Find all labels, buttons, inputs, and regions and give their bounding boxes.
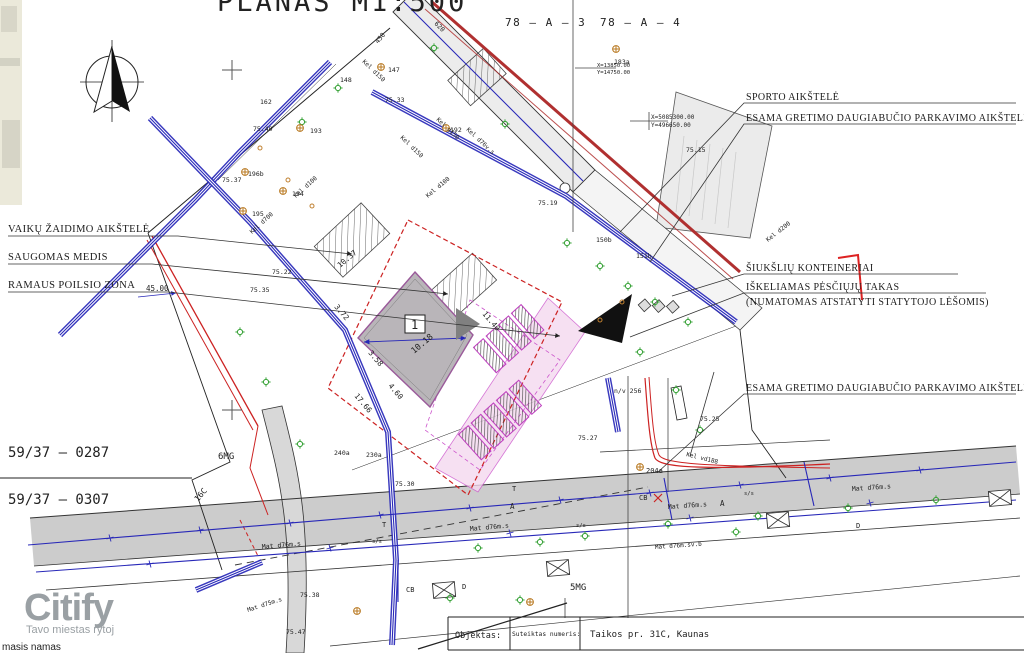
callout-pedestrian-path-note: (NUMATOMAS ATSTATYTI STATYTOJO LĖŠOMIS) xyxy=(746,296,989,308)
node-label: 192 xyxy=(450,126,462,134)
titleblock-address: Taikos pr. 31C, Kaunas xyxy=(590,630,709,640)
coord-cross1-y: Y=14750.00 xyxy=(597,70,630,76)
pipe-label: Kel d150 xyxy=(361,58,387,83)
elev: 75.30 xyxy=(395,480,415,488)
node-label: 162 xyxy=(260,98,272,106)
node-label: n/v 256 xyxy=(614,387,641,395)
elev: 75.25 xyxy=(700,415,720,423)
callout-existing-parking-2: ESAMA GRETIMO DAUGIABUČIO PARKAVIMO AIKŠ… xyxy=(746,382,1024,394)
node-label: 204a xyxy=(646,467,663,475)
node-label: 150b xyxy=(596,236,612,244)
callout-pedestrian-path: IŠKELIAMAS PĖSČIŲJŲ TAKAS xyxy=(746,281,899,293)
site-plan-page: 1 xyxy=(0,0,1024,653)
pipe-label: Mat d76m.sv.b xyxy=(655,541,703,551)
dim-4-60: 4.60 xyxy=(386,382,405,402)
title-block: Objektas: Suteiktas numeris: Taikos pr. … xyxy=(418,603,1024,650)
citify-logo-tagline: Tavo miestas rytoj xyxy=(26,624,114,636)
node-label: 195 xyxy=(252,210,264,218)
elev: 75.38 xyxy=(300,591,320,599)
callout-waste-containers: ŠIUKŠLIŲ KONTEINERIAI xyxy=(746,262,874,274)
dim-45-00: 45.00 xyxy=(146,284,169,293)
elev: 75.22 xyxy=(272,268,292,276)
node-label: 450 xyxy=(373,31,387,45)
elev: 75.27 xyxy=(578,434,598,442)
coord-cross2-y: Y=496650.00 xyxy=(651,122,691,129)
node-label: 147 xyxy=(388,66,400,74)
aerial-thumbnail xyxy=(0,0,22,205)
node-label: 240a xyxy=(334,449,350,457)
node-label: 148 xyxy=(340,76,352,84)
elev: 75.35 xyxy=(250,286,270,294)
grid-ref-right: 78 – A – 4 xyxy=(600,16,681,29)
pipe-label: Kel d150 xyxy=(399,134,425,159)
citify-logo-text[interactable]: Citify xyxy=(24,587,114,629)
callout-sport-field: SPORTO AIKŠTELĖ xyxy=(746,91,839,103)
road-mark: s/s xyxy=(372,539,382,545)
elev: 75.47 xyxy=(286,628,306,636)
parcel-5mg: 5MG xyxy=(570,583,586,593)
callout-rest-zone: RAMAUS POILSIO ZONA xyxy=(8,280,135,291)
node-label: 183a xyxy=(614,58,630,66)
parcel-number-2: 59/37 – 0307 xyxy=(8,492,109,508)
callout-existing-parking-1: ESAMA GRETIMO DAUGIABUČIO PARKAVIMO AIKŠ… xyxy=(746,112,1024,124)
pipe-label: Kel d100 xyxy=(425,175,452,199)
road-mark: CB xyxy=(406,586,414,594)
elev: 75.37 xyxy=(222,176,242,184)
parcel-6mg: 6MG xyxy=(218,452,234,462)
coord-cross2-x: X=5085300.00 xyxy=(651,114,695,121)
road-mark: s/s xyxy=(576,523,586,529)
caption-text: masis namas xyxy=(2,642,61,653)
road-mark: D xyxy=(462,583,466,591)
road-mark: CB xyxy=(639,494,647,502)
road-mark: A xyxy=(510,502,515,511)
north-compass xyxy=(80,40,144,122)
node-label: 230a xyxy=(366,451,382,459)
node-label: 193 xyxy=(310,127,322,135)
road-mark: s/s xyxy=(744,491,754,497)
elev: 75.19 xyxy=(538,199,558,207)
titleblock-numeris-label: Suteiktas numeris: xyxy=(512,631,580,638)
pipe-label: Mat d75m.s xyxy=(246,596,283,614)
callout-protected-tree: SAUGOMAS MEDIS xyxy=(8,252,108,263)
elev: 75.33 xyxy=(385,96,405,104)
titleblock-objektas-label: Objektas: xyxy=(455,631,501,641)
grid-ref-left: 78 – A – 3 xyxy=(505,16,586,29)
callout-playground: VAIKŲ ŽAIDIMO AIKŠTELĖ xyxy=(8,223,150,235)
node-label: 194 xyxy=(292,190,304,198)
elev: 75.15 xyxy=(686,146,706,154)
drawing-title: PLANAS M1:500 xyxy=(217,0,467,18)
site-plan-drawing: 1 xyxy=(0,0,1024,653)
parcel-number-1: 59/37 – 0287 xyxy=(8,445,109,461)
node-label: 196b xyxy=(248,170,264,178)
elev: 75.40 xyxy=(253,125,273,133)
node-label: 151b xyxy=(636,252,652,260)
citify-logo[interactable]: Citify Tavo miestas rytoj xyxy=(24,587,114,636)
road-mark: A xyxy=(720,499,725,508)
road-mark: D xyxy=(856,522,860,530)
pipe-label: Kel d200 xyxy=(765,220,792,244)
